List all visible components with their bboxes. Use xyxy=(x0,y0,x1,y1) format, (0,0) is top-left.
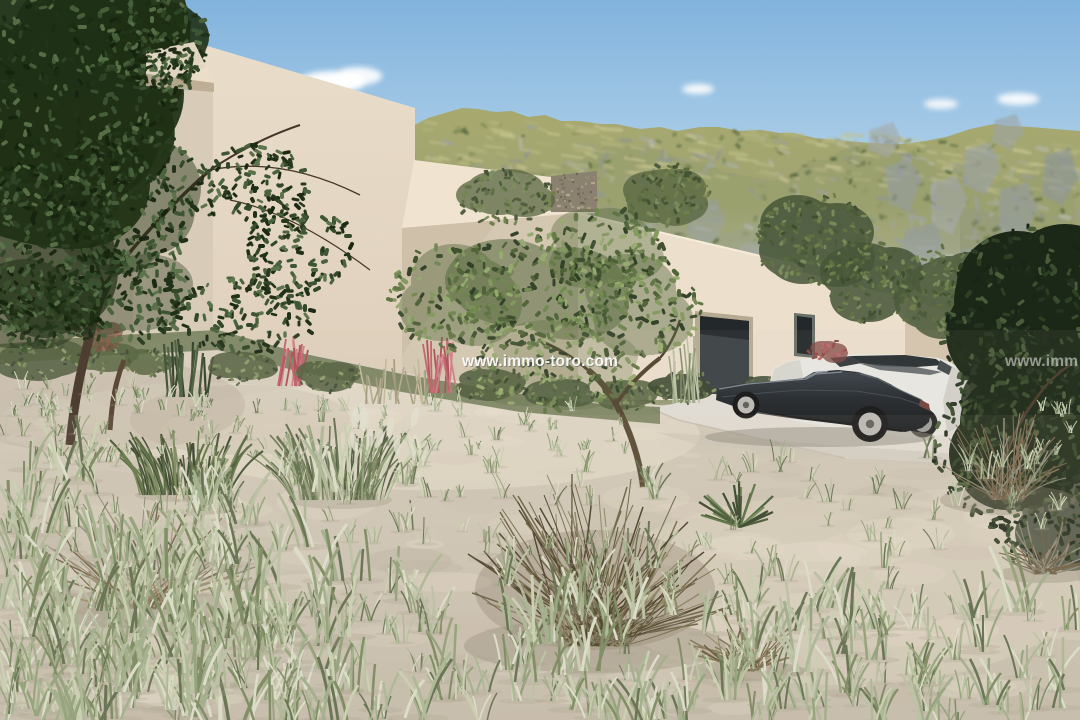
svg-text:www.imm: www.imm xyxy=(1004,353,1078,370)
svg-text:www.immo-toro.com: www.immo-toro.com xyxy=(461,353,618,370)
